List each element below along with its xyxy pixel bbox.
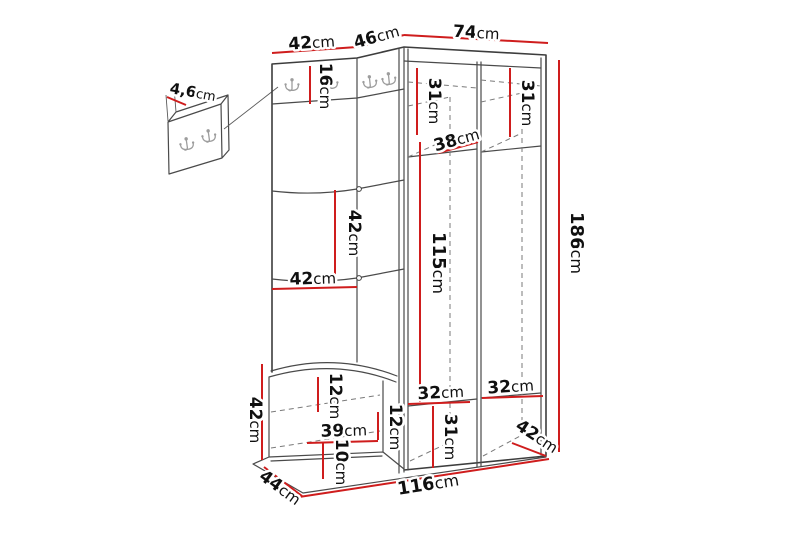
dim-label-bench-42: 42cm: [245, 397, 265, 444]
dim-label-32-right: 32cm: [487, 375, 535, 398]
wall-panel-outline: [168, 95, 229, 174]
dim-label-116: 116cm: [396, 469, 460, 499]
dim-label-bench-12-right: 12cm: [385, 404, 405, 451]
dim-label-10: 10cm: [331, 439, 351, 486]
upholstery-button: [357, 276, 362, 281]
dim-label-115: 115cm: [428, 232, 449, 294]
dim-label-42-horizontal: 42cm: [289, 268, 336, 290]
coat-hook-icon: [200, 128, 217, 143]
dim-label-top-74: 74cm: [453, 22, 501, 44]
dim-label-bench-12-top: 12cm: [325, 373, 345, 420]
furniture-dimension-diagram: 42cm 46cm 74cm 4,6cm 16cm 31cm 31cm 38cm…: [0, 0, 800, 533]
upholstery-button: [357, 187, 362, 192]
dim-label-186: 186cm: [566, 212, 587, 274]
dim-label-31-upper-right: 31cm: [517, 80, 537, 127]
coat-hook-icon: [381, 71, 397, 85]
dim-label-31-bottom: 31cm: [440, 414, 460, 461]
coat-hook-icon: [362, 74, 378, 88]
wall-panel-detail: [166, 87, 278, 174]
coat-hook-icon: [178, 136, 195, 151]
dim-label-16: 16cm: [315, 63, 335, 110]
dim-label-top-46: 46cm: [352, 21, 402, 53]
dim-label-32-left: 32cm: [417, 382, 465, 404]
diagram-canvas: 42cm 46cm 74cm 4,6cm 16cm 31cm 31cm 38cm…: [0, 0, 800, 533]
dim-label-44: 44cm: [255, 466, 304, 510]
coat-hook-icon: [284, 78, 299, 91]
leader-line: [224, 87, 278, 129]
dim-label-top-42: 42cm: [288, 31, 336, 54]
dim-label-42-vertical: 42cm: [344, 210, 364, 257]
main-unit-outer-edges: [272, 47, 546, 470]
dim-label-31-upper-left: 31cm: [424, 78, 444, 125]
horizontal-edges: [272, 61, 541, 406]
